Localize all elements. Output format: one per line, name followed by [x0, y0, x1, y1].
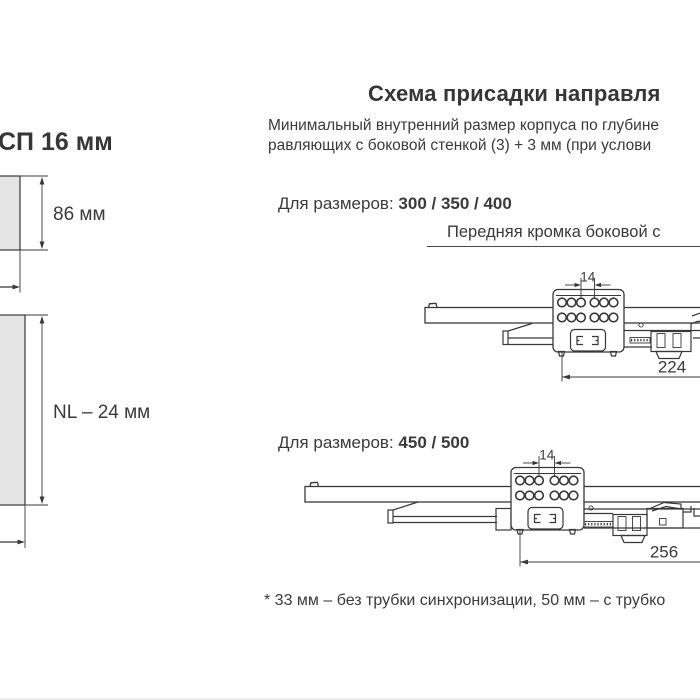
sizes-line-a: Для размеров: 300 / 350 / 400	[278, 194, 512, 214]
panel-material-label: СП 16 мм	[0, 128, 113, 157]
front-edge-caption: Передняя кромка боковой с	[427, 223, 700, 247]
slide-rail-b	[305, 487, 700, 503]
dim-nl-24mm: NL – 24 мм	[53, 402, 150, 423]
panel-front-section	[0, 176, 20, 250]
sizes-prefix-b: Для размеров:	[278, 433, 398, 452]
slide-drawing-450-500: 14 256	[305, 448, 700, 567]
panel-body-section	[0, 315, 25, 505]
dim-86mm: 86 мм	[53, 204, 106, 225]
dim-256: 256	[650, 543, 678, 562]
sizes-prefix-a: Для размеров:	[278, 194, 398, 213]
intro-line-2: равляющих с боковой стенкой (3) + 3 мм (…	[268, 137, 651, 155]
dim-14-a: 14	[580, 270, 596, 285]
page-title: Схема присадки направля	[368, 81, 661, 107]
dim-14-b: 14	[539, 448, 555, 463]
sizes-value-b: 450 / 500	[398, 433, 469, 452]
intro-line-1: Минимальный внутренний размер корпуса по…	[268, 117, 659, 135]
sizes-value-a: 300 / 350 / 400	[398, 194, 511, 213]
sizes-line-b: Для размеров: 450 / 500	[278, 433, 469, 453]
page: { "header": { "title": "Схема присадки н…	[0, 0, 700, 700]
slide-drawing-300-400: 14 224	[425, 270, 700, 382]
footnote: * 33 мм – без трубки синхронизации, 50 м…	[264, 592, 665, 610]
panel-edge-diagram: 86 мм NL – 24 мм	[0, 176, 150, 548]
dim-224: 224	[658, 358, 686, 377]
